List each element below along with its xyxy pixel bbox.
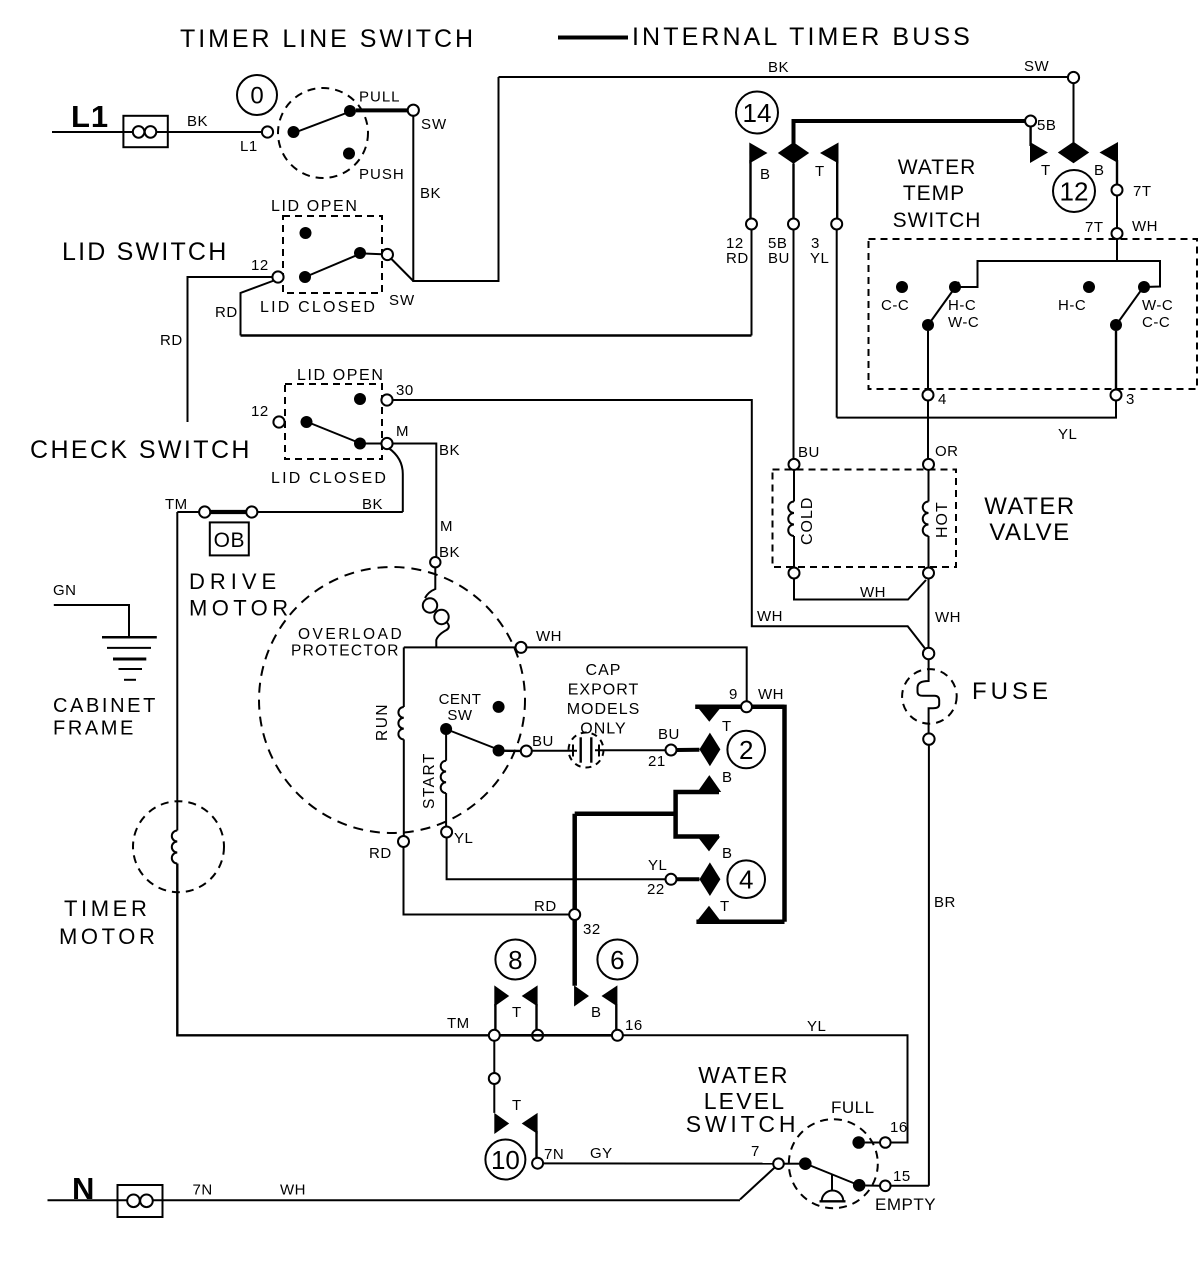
svg-text:HOT: HOT — [934, 501, 951, 538]
svg-text:7N: 7N — [193, 1182, 213, 1199]
svg-text:COLD: COLD — [799, 497, 816, 545]
svg-text:4: 4 — [739, 865, 753, 895]
svg-text:WH: WH — [758, 686, 784, 703]
svg-text:YL: YL — [454, 830, 473, 847]
svg-text:4: 4 — [938, 391, 947, 408]
svg-text:WH: WH — [536, 628, 562, 645]
svg-text:21: 21 — [648, 753, 666, 770]
svg-text:LID OPEN: LID OPEN — [297, 367, 385, 384]
svg-text:LID SWITCH: LID SWITCH — [62, 238, 228, 266]
svg-text:B: B — [591, 1004, 602, 1021]
svg-text:GN: GN — [53, 582, 77, 599]
svg-text:OVERLOAD: OVERLOAD — [298, 626, 404, 643]
svg-text:12: 12 — [251, 403, 269, 420]
svg-text:WH: WH — [935, 609, 961, 626]
svg-text:3: 3 — [1126, 391, 1135, 408]
svg-text:RD: RD — [160, 332, 183, 349]
svg-text:WH: WH — [1132, 218, 1158, 235]
svg-text:YL: YL — [807, 1018, 826, 1035]
svg-text:RUN: RUN — [374, 703, 391, 741]
svg-text:DRIVE: DRIVE — [189, 569, 281, 594]
svg-text:B: B — [722, 769, 733, 786]
svg-text:BK: BK — [362, 496, 383, 513]
svg-text:BU: BU — [532, 733, 554, 750]
svg-text:0: 0 — [250, 83, 263, 110]
svg-text:H-C: H-C — [948, 297, 976, 314]
svg-text:YL: YL — [810, 250, 829, 267]
svg-text:22: 22 — [647, 881, 665, 898]
svg-text:INTERNAL TIMER BUSS: INTERNAL TIMER BUSS — [632, 23, 973, 51]
svg-text:9: 9 — [729, 686, 738, 703]
svg-text:6: 6 — [610, 945, 624, 975]
svg-text:5B: 5B — [1037, 117, 1056, 134]
svg-text:L1: L1 — [240, 138, 258, 155]
svg-text:CABINET: CABINET — [53, 695, 158, 717]
svg-text:MODELS: MODELS — [567, 701, 641, 718]
svg-text:BU: BU — [658, 726, 680, 743]
svg-text:SW: SW — [389, 292, 415, 309]
svg-text:RD: RD — [369, 845, 392, 862]
svg-text:MOTOR: MOTOR — [59, 924, 158, 949]
svg-text:PULL: PULL — [359, 89, 401, 106]
svg-text:T: T — [1041, 162, 1051, 179]
svg-text:FRAME: FRAME — [53, 718, 136, 740]
svg-text:C-C: C-C — [1142, 314, 1170, 331]
svg-text:T: T — [720, 898, 730, 915]
svg-text:SW: SW — [1024, 58, 1050, 75]
svg-text:30: 30 — [396, 382, 414, 399]
svg-text:TM: TM — [447, 1015, 470, 1032]
svg-text:SWITCH: SWITCH — [893, 209, 982, 232]
svg-text:LID CLOSED: LID CLOSED — [271, 470, 388, 487]
svg-text:YL: YL — [1058, 426, 1077, 443]
svg-text:BK: BK — [187, 113, 208, 130]
svg-text:CENT: CENT — [439, 691, 482, 708]
svg-text:OB: OB — [214, 529, 245, 552]
svg-text:YL: YL — [648, 857, 667, 874]
svg-text:ONLY: ONLY — [580, 721, 626, 738]
svg-text:BK: BK — [439, 442, 460, 459]
svg-text:LID OPEN: LID OPEN — [271, 198, 359, 215]
svg-text:C-C: C-C — [881, 297, 909, 314]
svg-text:CHECK SWITCH: CHECK SWITCH — [30, 436, 252, 464]
svg-text:WATER: WATER — [698, 1062, 790, 1088]
svg-text:OR: OR — [935, 443, 959, 460]
svg-text:WATER: WATER — [984, 493, 1076, 520]
svg-text:VALVE: VALVE — [989, 519, 1070, 546]
svg-text:L1: L1 — [71, 99, 109, 134]
svg-text:WATER: WATER — [898, 156, 977, 179]
svg-text:7T: 7T — [1085, 219, 1104, 236]
svg-text:TEMP: TEMP — [903, 182, 965, 205]
svg-text:H-C: H-C — [1058, 297, 1086, 314]
svg-text:16: 16 — [625, 1017, 643, 1034]
svg-text:RD: RD — [726, 250, 749, 267]
svg-text:TIMER: TIMER — [64, 896, 150, 921]
svg-text:T: T — [815, 163, 825, 180]
svg-text:12: 12 — [1060, 176, 1089, 206]
svg-text:2: 2 — [739, 735, 753, 765]
svg-text:7T: 7T — [1133, 183, 1152, 200]
svg-text:FULL: FULL — [831, 1098, 875, 1117]
svg-text:BU: BU — [768, 250, 790, 267]
svg-text:RD: RD — [534, 898, 557, 915]
svg-text:B: B — [1094, 162, 1105, 179]
svg-text:T: T — [512, 1004, 522, 1021]
svg-text:T: T — [722, 718, 732, 735]
svg-text:CAP: CAP — [586, 662, 622, 679]
svg-text:14: 14 — [743, 98, 772, 128]
svg-text:10: 10 — [491, 1145, 520, 1175]
svg-text:32: 32 — [583, 921, 601, 938]
svg-text:7: 7 — [751, 1143, 760, 1160]
svg-text:PROTECTOR: PROTECTOR — [291, 643, 400, 660]
svg-text:B: B — [760, 166, 771, 183]
svg-text:BK: BK — [420, 185, 441, 202]
svg-text:BR: BR — [934, 894, 956, 911]
svg-text:8: 8 — [508, 945, 522, 975]
svg-text:SW: SW — [421, 116, 447, 133]
svg-text:EMPTY: EMPTY — [875, 1195, 936, 1214]
svg-text:W-C: W-C — [1142, 297, 1173, 314]
svg-text:M: M — [440, 518, 453, 535]
svg-text:EXPORT: EXPORT — [568, 682, 640, 699]
svg-text:T: T — [512, 1097, 522, 1114]
svg-text:RD: RD — [215, 304, 238, 321]
svg-text:16: 16 — [890, 1119, 908, 1136]
svg-text:TIMER LINE SWITCH: TIMER LINE SWITCH — [180, 25, 476, 53]
svg-text:WH: WH — [280, 1182, 306, 1199]
svg-text:BK: BK — [768, 59, 789, 76]
svg-text:WH: WH — [757, 608, 783, 625]
svg-text:PUSH: PUSH — [359, 166, 405, 183]
svg-text:MOTOR: MOTOR — [189, 596, 292, 621]
svg-text:START: START — [421, 752, 438, 809]
svg-text:7N: 7N — [544, 1146, 564, 1163]
svg-text:BU: BU — [798, 444, 820, 461]
svg-text:LID CLOSED: LID CLOSED — [260, 299, 377, 316]
svg-text:SWITCH: SWITCH — [686, 1111, 800, 1137]
svg-text:B: B — [722, 845, 733, 862]
svg-text:SW: SW — [447, 707, 473, 724]
svg-text:12: 12 — [251, 257, 269, 274]
svg-text:BK: BK — [439, 544, 460, 561]
svg-text:15: 15 — [893, 1168, 911, 1185]
svg-text:GY: GY — [590, 1145, 613, 1162]
svg-text:WH: WH — [860, 584, 886, 601]
svg-text:W-C: W-C — [948, 314, 979, 331]
svg-text:FUSE: FUSE — [972, 678, 1052, 705]
svg-text:M: M — [396, 423, 409, 440]
svg-text:TM: TM — [165, 496, 188, 513]
